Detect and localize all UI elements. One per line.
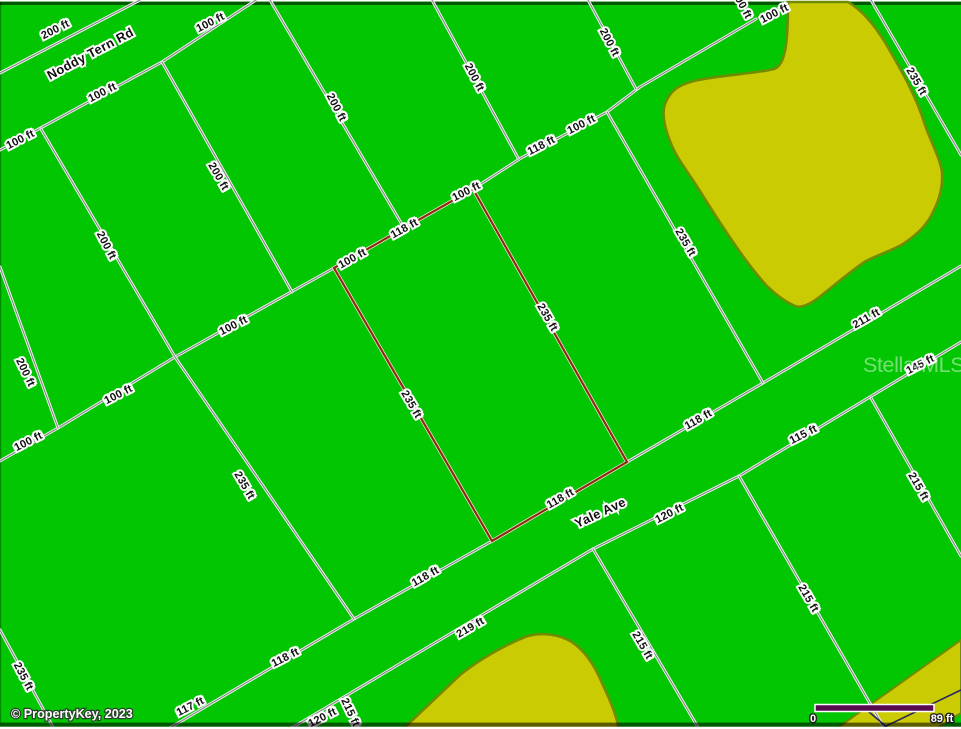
svg-text:© PropertyKey, 2023: © PropertyKey, 2023 [11,707,133,721]
svg-text:StellarMLS: StellarMLS [863,353,961,377]
